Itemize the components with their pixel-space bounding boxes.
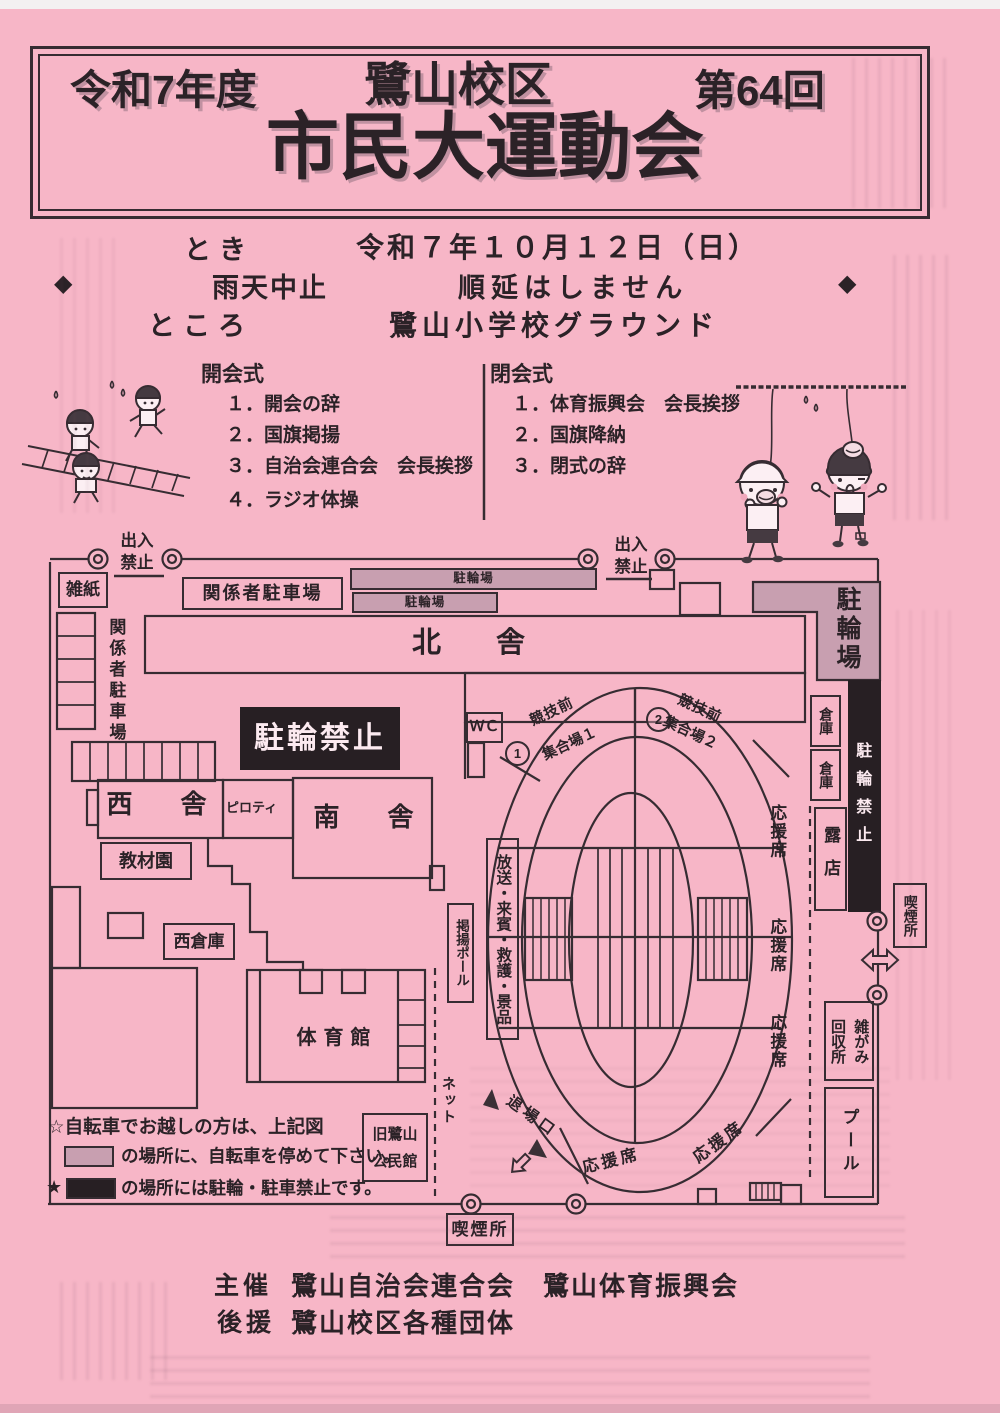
support-value: 鷺山校区各種団体	[291, 1308, 515, 1339]
cheer-seat-right-3: 応援席	[766, 1014, 786, 1070]
assembly-1-number: 1	[505, 741, 530, 766]
teaching-garden-box: 教材園	[100, 842, 192, 880]
host-value: 鷺山自治会連合会 鷺山体育振興会	[291, 1271, 739, 1302]
legend-forbidden-swatch	[66, 1178, 116, 1199]
west-warehouse-box: 西倉庫	[163, 923, 235, 960]
staff-parking-vertical-label: 関係者駐車場	[105, 618, 125, 744]
kids-ladder-illustration	[22, 381, 190, 503]
flag-pole-box: 掲揚ポール	[447, 903, 474, 1003]
gate-label-left: 出入 禁止	[110, 531, 164, 575]
legend-line-1: ☆自転車でお越しの方は、上記図	[48, 1116, 324, 1138]
gate-label-right: 出入 禁止	[604, 535, 658, 579]
cheer-seat-right-1: 応援席	[766, 804, 786, 860]
exit-arrow-icon	[506, 1151, 533, 1178]
bike-parking-bar-1: 駐輪場	[350, 568, 597, 590]
legend-line-2: の場所に、自転車を停めて下さい。	[121, 1146, 400, 1167]
gate-double-arrow-icon	[862, 950, 898, 970]
no-bike-sign-box: 駐輪禁止	[240, 707, 400, 770]
legend-star: ★	[46, 1177, 62, 1199]
waste-collection-box: 雑がみ 回収所	[824, 1001, 874, 1081]
north-building-label: 北 舎	[400, 626, 550, 661]
support-label: 後援	[217, 1308, 275, 1338]
staff-parking-box: 関係者駐車場	[182, 577, 343, 610]
waste-paper-box: 雑紙	[58, 572, 108, 608]
cheer-seat-right-2: 応援席	[766, 918, 786, 974]
host-label: 主催	[214, 1271, 272, 1301]
bike-parking-bar-2: 駐輪場	[352, 592, 498, 613]
bike-parking-area-label: 駐輪場	[832, 586, 862, 673]
stall-box: 露店	[814, 807, 847, 911]
legend-line-3: の場所には駐輪・駐車禁止です。	[121, 1178, 382, 1199]
piloti-label: ピロティ	[226, 800, 277, 816]
broadcast-guest-box: 放送・来賓・救護・景品	[486, 838, 519, 1040]
net-label: ネット	[438, 1076, 455, 1126]
site-map-drawing	[0, 0, 1000, 1413]
west-building-label: 西 舎	[101, 789, 223, 820]
warehouse-box-2: 倉庫	[810, 749, 841, 801]
warehouse-box-1: 倉庫	[810, 695, 841, 747]
kids-bread-race-illustration	[736, 387, 906, 563]
smoking-area-box-bottom: 喫煙所	[446, 1213, 514, 1246]
traffic-cone-icon	[528, 1139, 547, 1158]
legend-bike-swatch	[64, 1146, 114, 1167]
no-bike-bar-label: 駐輪禁止	[852, 742, 871, 854]
pool-box: プール	[824, 1087, 874, 1198]
wc-box: ＷＣ	[466, 712, 503, 743]
flyer-page: 令和7年度 鷺山校区 第64回 市民大運動会 ◆ ◆ とき 令和７年１０月１２日…	[0, 0, 1000, 1413]
gym-label: 体育館	[272, 1026, 402, 1050]
smoking-area-box-right: 喫煙所	[893, 883, 927, 948]
south-building-label: 南 舎	[306, 802, 432, 833]
